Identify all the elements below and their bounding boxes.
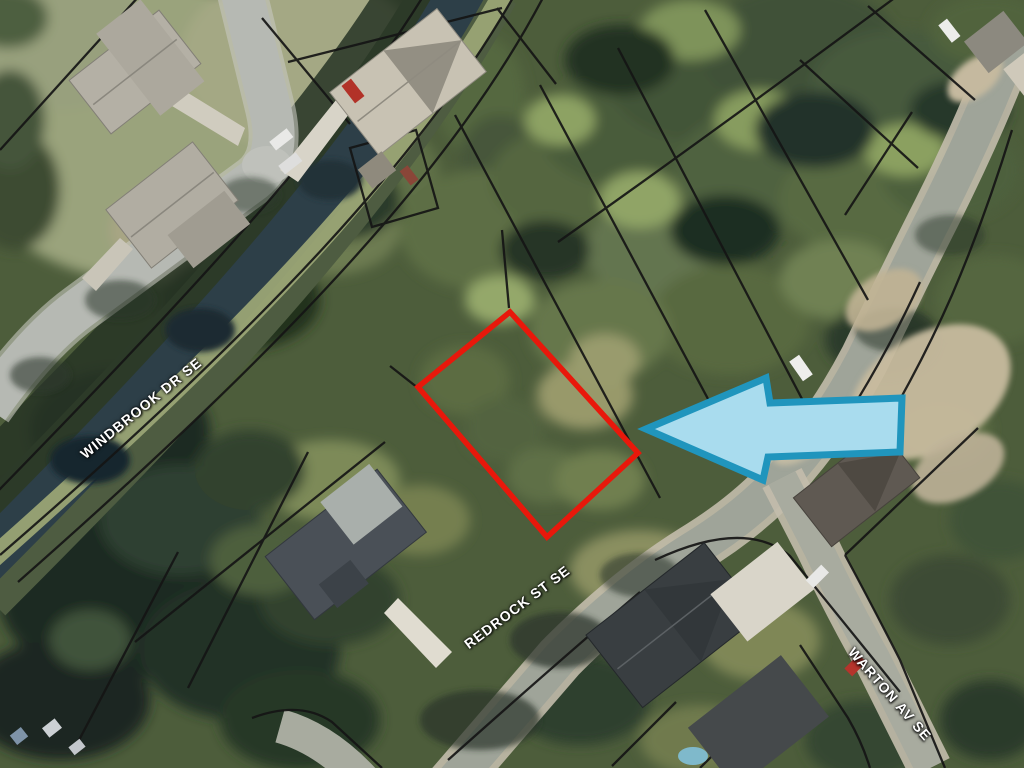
aerial-map: WINDBROOK DR SE REDROCK ST SE WARTON AV … [0, 0, 1024, 768]
aerial-photo [0, 0, 1024, 768]
pool [678, 747, 708, 765]
